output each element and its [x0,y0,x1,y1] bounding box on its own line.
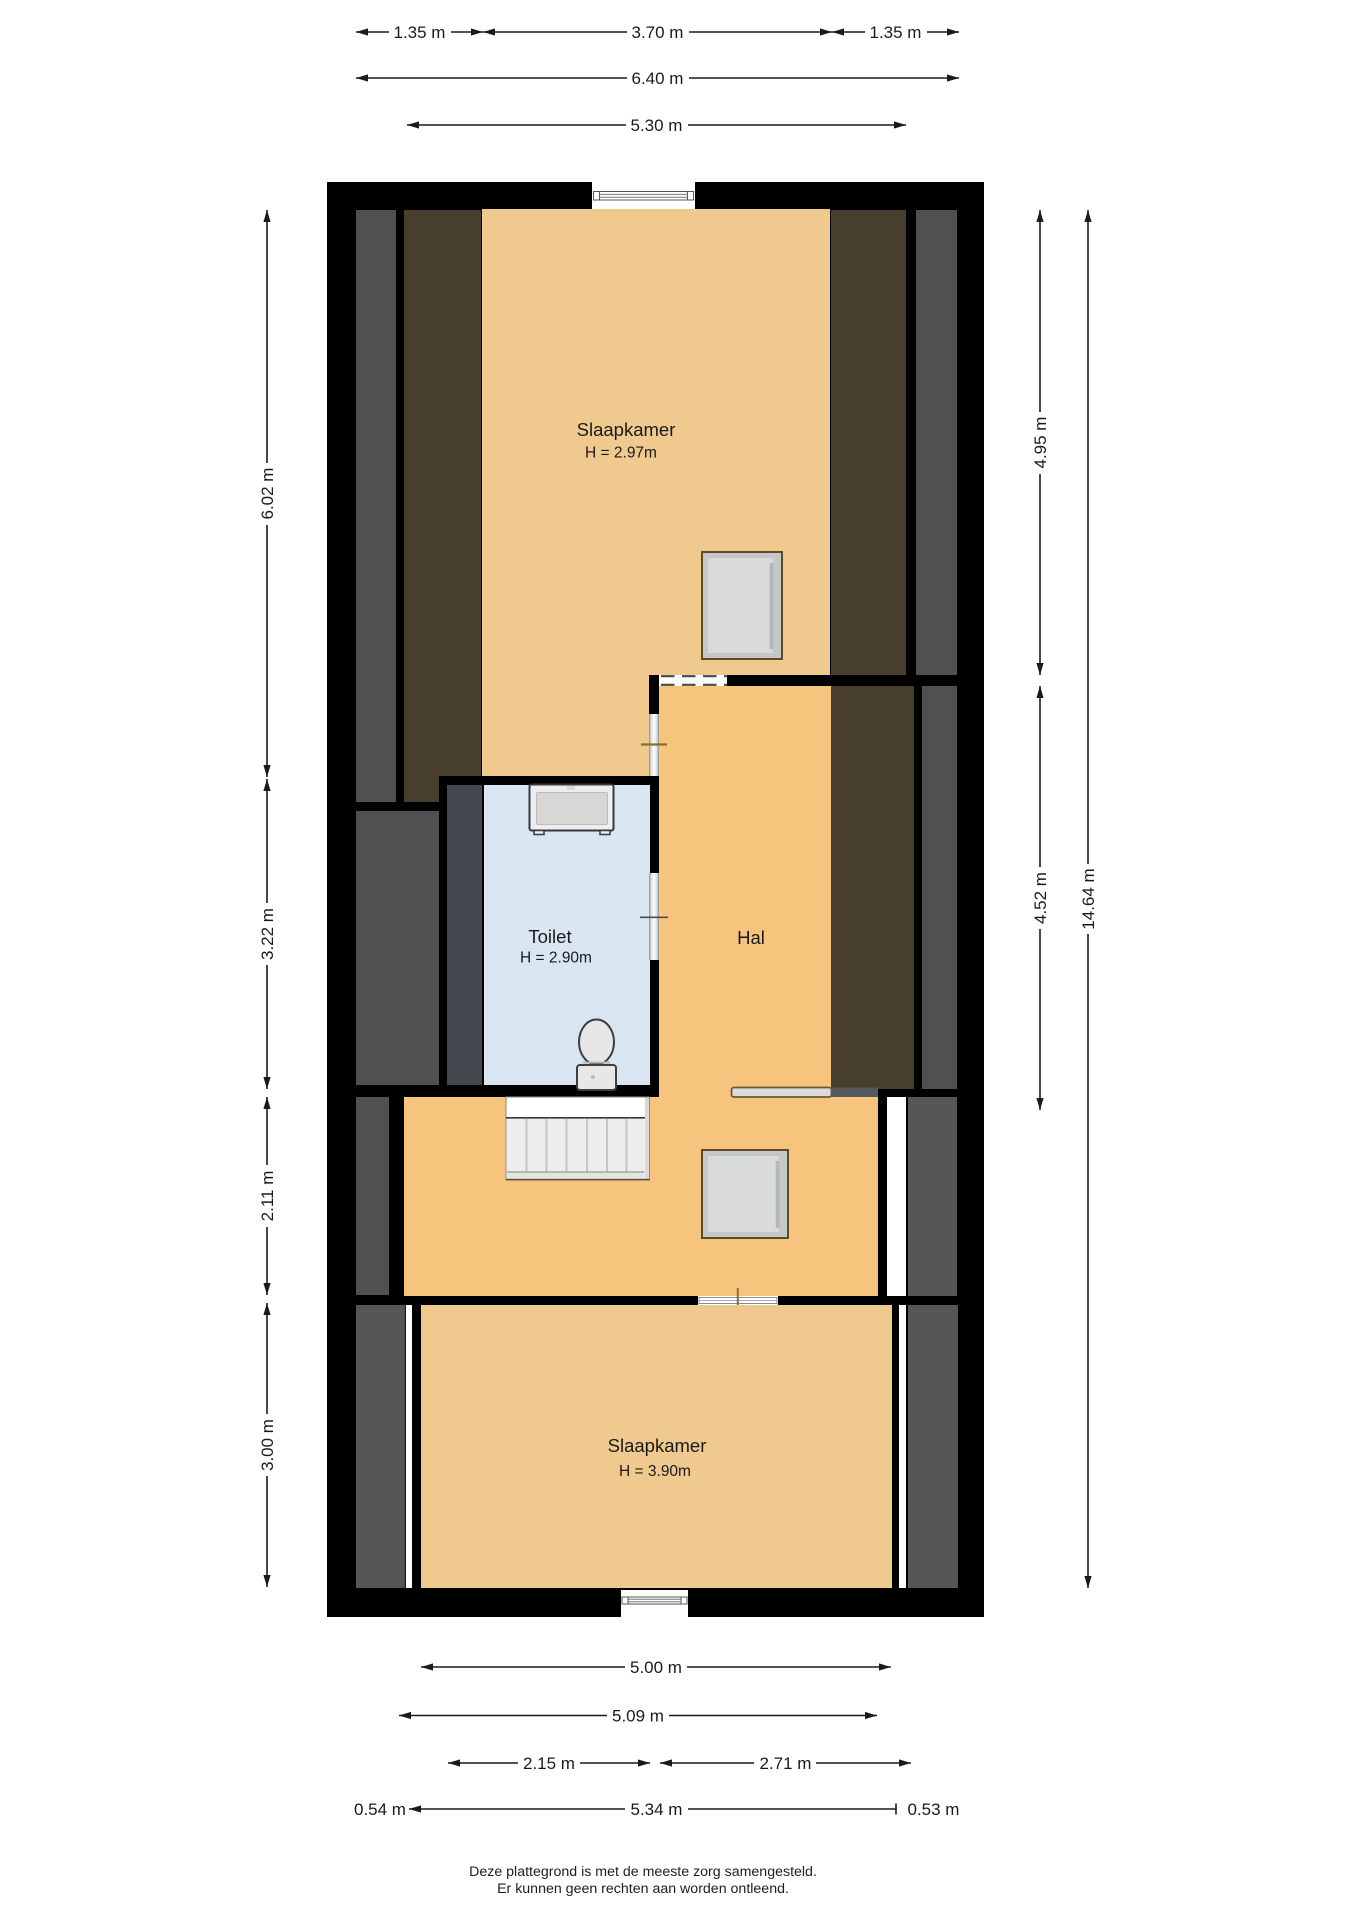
svg-text:2.15 m: 2.15 m [523,1754,575,1773]
svg-text:Hal: Hal [737,927,765,948]
svg-text:H = 3.90m: H = 3.90m [619,1463,691,1480]
svg-text:14.64 m: 14.64 m [1079,868,1098,929]
svg-text:6.02 m: 6.02 m [258,468,277,520]
svg-text:1.35 m: 1.35 m [394,23,446,42]
svg-text:3.22 m: 3.22 m [258,908,277,960]
svg-text:Deze plattegrond is met de mee: Deze plattegrond is met de meeste zorg s… [469,1864,817,1880]
svg-text:2.71 m: 2.71 m [760,1754,812,1773]
svg-text:Toilet: Toilet [528,926,571,947]
svg-text:2.11 m: 2.11 m [258,1171,277,1222]
svg-text:Er kunnen geen rechten aan wor: Er kunnen geen rechten aan worden ontlee… [497,1881,789,1897]
svg-text:Slaapkamer: Slaapkamer [608,1435,707,1456]
svg-text:3.70 m: 3.70 m [632,23,684,42]
svg-text:0.54 m: 0.54 m [354,1800,406,1819]
svg-text:5.00 m: 5.00 m [630,1658,682,1677]
svg-text:1.35 m: 1.35 m [870,23,922,42]
svg-text:0.53 m: 0.53 m [908,1800,960,1819]
svg-text:6.40 m: 6.40 m [632,69,684,88]
svg-text:H = 2.97m: H = 2.97m [585,445,657,462]
svg-text:4.52 m: 4.52 m [1031,872,1050,924]
svg-text:4.95 m: 4.95 m [1031,417,1050,469]
svg-text:Slaapkamer: Slaapkamer [577,419,676,440]
svg-text:5.30 m: 5.30 m [631,116,683,135]
svg-text:5.34 m: 5.34 m [631,1800,683,1819]
svg-text:5.09 m: 5.09 m [612,1707,664,1726]
svg-text:3.00 m: 3.00 m [258,1419,277,1471]
svg-text:H = 2.90m: H = 2.90m [520,950,592,967]
